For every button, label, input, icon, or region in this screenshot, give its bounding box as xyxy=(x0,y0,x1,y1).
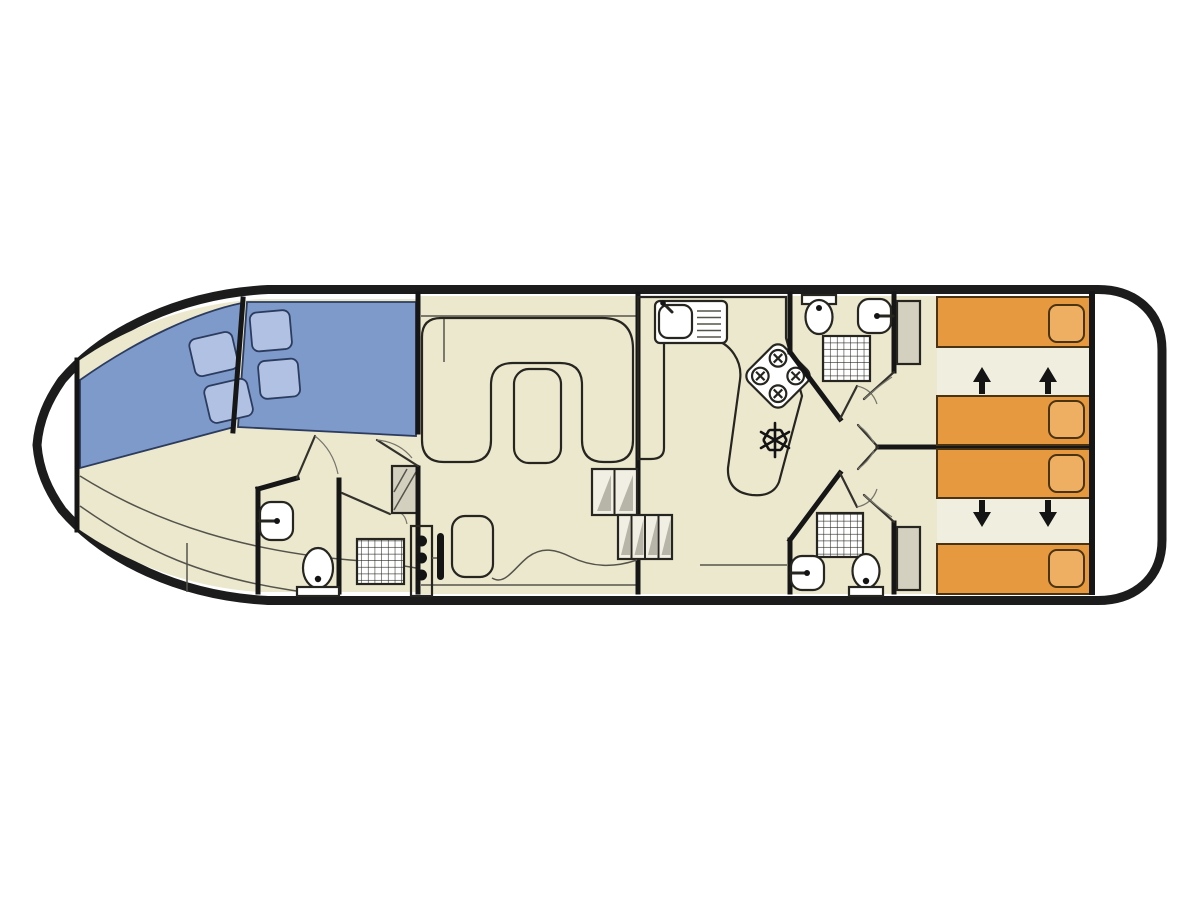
steps-upper xyxy=(592,469,637,515)
toilet-tank xyxy=(297,587,339,596)
wardrobe xyxy=(897,301,920,364)
galley-sink xyxy=(655,300,727,343)
shower-tray xyxy=(357,539,404,584)
basin-tap-dot xyxy=(874,313,880,319)
pillow xyxy=(1049,401,1084,438)
aft-cabin-top-gap-floor xyxy=(937,347,1092,396)
boat-floor-plan xyxy=(0,0,1200,900)
shower-grid xyxy=(818,514,862,556)
shower-tray xyxy=(823,336,870,381)
aft-cabin-bottom-gap-floor xyxy=(937,498,1092,544)
basin-tap-dot xyxy=(804,570,810,576)
boat-floor-plan-page xyxy=(0,0,1200,900)
pillow xyxy=(1049,305,1084,342)
basin-tap-dot xyxy=(274,518,280,524)
console-knob xyxy=(416,536,427,547)
pillow xyxy=(1049,455,1084,492)
shower-grid xyxy=(824,337,869,380)
toilet-flush-dot xyxy=(816,305,822,311)
console-knob xyxy=(416,570,427,581)
toilet-flush-dot xyxy=(315,576,321,582)
shower-grid xyxy=(358,540,403,583)
console-knob xyxy=(416,553,427,564)
sink-tap-dot xyxy=(660,300,666,306)
toilet-tank xyxy=(849,587,883,596)
aft-cabins xyxy=(937,294,1092,594)
steps-lower xyxy=(618,515,672,559)
wardrobe xyxy=(897,527,920,590)
toilet-flush-dot xyxy=(863,578,869,584)
pillow xyxy=(1049,550,1084,587)
pillow xyxy=(258,358,301,399)
steering-wheel xyxy=(437,533,444,580)
shower-tray xyxy=(817,513,863,557)
pillow xyxy=(249,310,292,352)
